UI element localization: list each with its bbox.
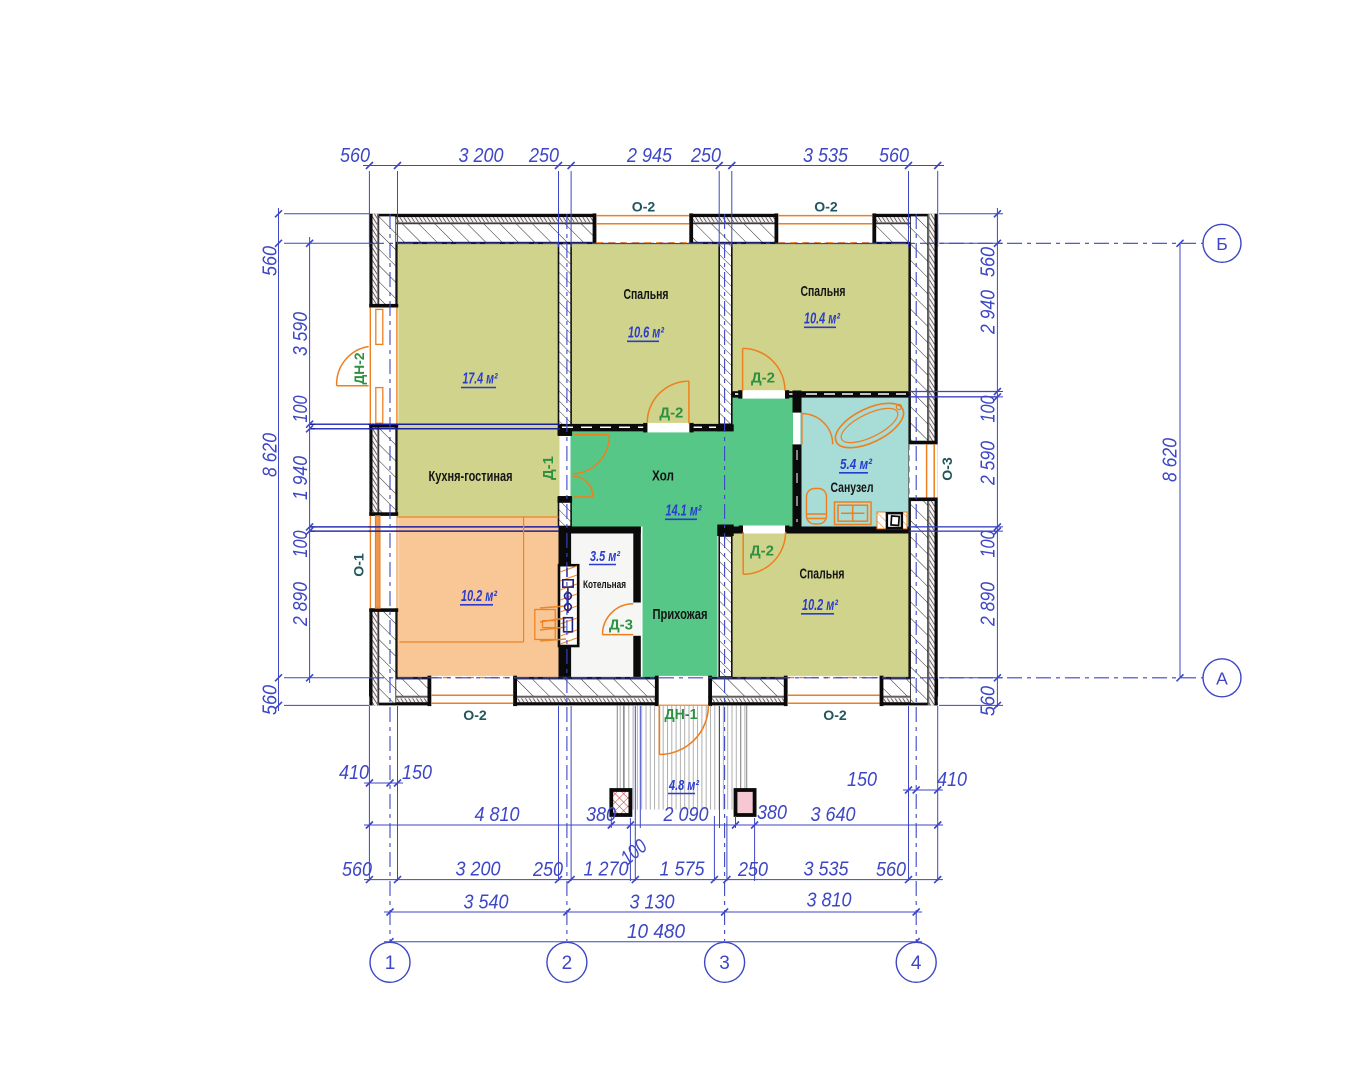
svg-text:Спальня: Спальня: [800, 566, 845, 583]
svg-text:Б: Б: [1216, 234, 1227, 254]
svg-text:3 200: 3 200: [456, 859, 501, 881]
svg-text:Д-3: Д-3: [609, 617, 633, 634]
svg-text:1 575: 1 575: [660, 859, 706, 881]
svg-text:150: 150: [847, 769, 877, 791]
svg-text:8 620: 8 620: [260, 433, 282, 477]
svg-text:О-2: О-2: [823, 708, 847, 723]
svg-text:2 090: 2 090: [663, 804, 709, 826]
svg-text:560: 560: [342, 859, 372, 881]
svg-text:О-1: О-1: [352, 553, 367, 577]
svg-text:Д-2: Д-2: [750, 543, 774, 560]
svg-text:17.4 м²: 17.4 м²: [463, 371, 499, 388]
svg-text:560: 560: [260, 246, 282, 276]
svg-text:10.6 м²: 10.6 м²: [628, 325, 665, 342]
svg-text:380: 380: [586, 804, 616, 826]
svg-text:Д-1: Д-1: [540, 456, 557, 480]
svg-text:Д-2: Д-2: [751, 370, 775, 387]
svg-text:2 890: 2 890: [978, 582, 1000, 627]
svg-text:Кухня-гостиная: Кухня-гостиная: [429, 468, 513, 485]
svg-text:100: 100: [978, 531, 1000, 558]
svg-text:410: 410: [937, 769, 967, 791]
svg-text:560: 560: [260, 685, 282, 715]
svg-text:3 540: 3 540: [464, 892, 509, 914]
svg-text:3 200: 3 200: [459, 145, 504, 167]
svg-text:10.2 м²: 10.2 м²: [802, 597, 839, 614]
svg-text:О-2: О-2: [632, 200, 656, 215]
svg-text:3: 3: [719, 953, 730, 974]
svg-text:ДН-1: ДН-1: [665, 706, 698, 723]
svg-text:250: 250: [528, 145, 559, 167]
svg-text:560: 560: [978, 247, 1000, 277]
svg-text:О-2: О-2: [814, 200, 838, 215]
svg-text:10.2 м²: 10.2 м²: [461, 588, 498, 605]
svg-text:10.4 м²: 10.4 м²: [804, 311, 841, 328]
svg-text:14.1 м²: 14.1 м²: [666, 503, 703, 520]
svg-text:2 940: 2 940: [978, 290, 1000, 335]
svg-text:Котельная: Котельная: [583, 579, 626, 591]
svg-text:560: 560: [978, 686, 1000, 716]
svg-text:410: 410: [339, 762, 369, 784]
svg-text:О-3: О-3: [940, 457, 955, 481]
svg-text:250: 250: [690, 145, 721, 167]
svg-text:250: 250: [737, 859, 768, 881]
svg-text:О-2: О-2: [463, 708, 487, 723]
svg-text:4 810: 4 810: [475, 804, 520, 826]
svg-text:3 535: 3 535: [804, 859, 850, 881]
svg-text:8 620: 8 620: [1160, 438, 1182, 482]
svg-text:3 130: 3 130: [630, 892, 675, 914]
svg-text:100: 100: [978, 396, 1000, 423]
svg-text:3 640: 3 640: [811, 804, 856, 826]
svg-text:4: 4: [911, 953, 922, 974]
svg-text:1: 1: [385, 953, 396, 974]
svg-text:Спальня: Спальня: [624, 286, 669, 303]
svg-text:3 535: 3 535: [803, 145, 849, 167]
svg-text:380: 380: [757, 802, 787, 824]
svg-text:Прихожая: Прихожая: [653, 606, 708, 623]
svg-text:А: А: [1216, 668, 1228, 688]
svg-text:3 590: 3 590: [290, 312, 312, 356]
svg-text:Санузел: Санузел: [831, 480, 874, 495]
svg-text:560: 560: [876, 859, 906, 881]
svg-text:150: 150: [402, 762, 432, 784]
svg-text:ДН-2: ДН-2: [351, 352, 367, 384]
svg-text:560: 560: [879, 145, 909, 167]
svg-text:2 945: 2 945: [626, 145, 673, 167]
svg-text:5.4 м²: 5.4 м²: [840, 456, 873, 473]
svg-text:2 890: 2 890: [290, 582, 312, 627]
svg-text:Д-2: Д-2: [659, 405, 683, 422]
svg-text:Спальня: Спальня: [801, 283, 846, 300]
svg-text:100: 100: [290, 531, 312, 558]
svg-text:250: 250: [532, 859, 563, 881]
svg-text:10 480: 10 480: [627, 921, 685, 943]
svg-text:4.8 м²: 4.8 м²: [668, 778, 700, 794]
svg-text:2 590: 2 590: [978, 441, 1000, 486]
svg-text:2: 2: [562, 953, 573, 974]
svg-text:100: 100: [290, 396, 312, 423]
svg-text:1 940: 1 940: [290, 456, 312, 500]
svg-text:1 270: 1 270: [584, 859, 629, 881]
svg-text:560: 560: [340, 145, 370, 167]
svg-text:3.5 м²: 3.5 м²: [590, 549, 621, 565]
svg-text:Хол: Хол: [652, 468, 674, 485]
svg-text:3 810: 3 810: [807, 890, 852, 912]
